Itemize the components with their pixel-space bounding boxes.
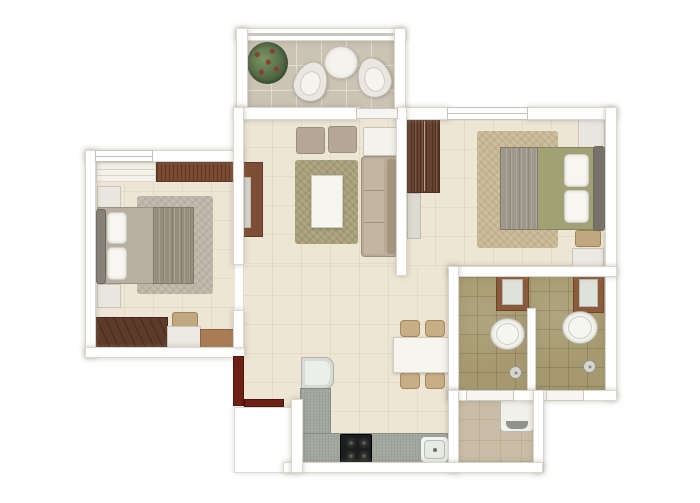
bedroom-1-blanket — [153, 207, 194, 284]
bedroom-1-dresser-white — [167, 326, 201, 349]
wall-bathroom-1-left — [448, 266, 459, 400]
wall-bedroom-1-right-lower — [233, 310, 244, 348]
bedroom-2-dresser-panel — [407, 193, 421, 239]
dining-chair-top-right — [425, 320, 445, 337]
bedroom-2-stool — [575, 230, 601, 247]
bathroom-2-washbasin — [573, 273, 604, 313]
bedroom-1-pillow-top — [107, 212, 127, 244]
wall-bedroom-2-bottom — [448, 266, 617, 277]
dining-chair-bottom-right — [425, 372, 445, 389]
floor-plan — [0, 0, 700, 503]
bedroom-2-pillow-bottom — [564, 190, 589, 223]
wall-right-exterior — [605, 107, 617, 400]
wall-bathrooms-divider — [527, 308, 536, 400]
dining-chair-top-left — [400, 320, 420, 337]
tv-screen — [244, 177, 251, 228]
balcony-door-sill — [356, 108, 398, 119]
bedroom-1-wardrobe — [95, 317, 168, 348]
wall-bedroom-1-right-upper — [233, 107, 244, 265]
bedroom-1-headboard — [96, 209, 106, 284]
bedroom-2-blanket — [500, 147, 538, 230]
washing-machine — [500, 398, 534, 432]
balcony-plant — [247, 42, 288, 84]
living-side-table — [363, 127, 398, 156]
wall-bedroom-1-bottom — [85, 347, 245, 358]
entry-door-leaf — [233, 356, 244, 406]
bathroom-1-door-sill — [466, 390, 514, 401]
kitchen-counter-vertical — [300, 388, 331, 435]
coffee-table — [311, 175, 343, 228]
bedroom-1-window-ledge — [96, 162, 156, 182]
fridge — [301, 357, 334, 389]
bedroom-2-wardrobe — [407, 119, 440, 193]
bathroom-2-door-sill — [546, 390, 584, 401]
ottoman-left — [296, 127, 325, 154]
bedroom-2-nightstand-top — [578, 117, 605, 148]
wall-utility-right — [533, 390, 544, 473]
wall-balcony-left — [236, 28, 248, 118]
bathroom-2-drain — [583, 360, 596, 373]
balcony-railing-line — [248, 33, 394, 36]
wall-bottom-exterior — [283, 462, 543, 473]
bathroom-1-washbasin — [496, 273, 529, 311]
ottoman-right — [328, 126, 357, 153]
wall-living-bedroom-2 — [396, 107, 407, 276]
bathroom-1-toilet — [490, 318, 525, 350]
sofa — [361, 156, 398, 257]
bedroom-1-pillow-bottom — [107, 247, 127, 280]
stove-hob — [340, 434, 372, 463]
bedroom-1-wood-cabinet — [156, 162, 243, 182]
wall-bedroom-1-left — [85, 150, 96, 358]
bedroom-1-window — [95, 150, 153, 162]
bedroom-1-nightstand-top — [97, 186, 121, 209]
dining-chair-bottom-left — [400, 372, 420, 389]
bathroom-1-drain — [509, 366, 522, 379]
balcony-round-table — [324, 46, 358, 79]
bedroom-2-pillow-top — [564, 154, 589, 187]
wall-bedroom-2-top-left — [404, 107, 450, 120]
bathroom-2-toilet — [562, 311, 598, 344]
kitchen-sink — [420, 436, 449, 463]
bedroom-2-headboard — [593, 146, 605, 231]
wall-utility-left — [448, 390, 459, 473]
wall-living-top — [236, 107, 360, 120]
wall-bedroom-2-top-right — [527, 107, 617, 120]
wall-kitchen-left — [291, 399, 303, 473]
entry-door-swing — [244, 399, 284, 407]
bedroom-2-window — [447, 107, 528, 120]
bedroom-1-nightstand-bottom — [97, 284, 121, 308]
dining-table — [393, 337, 452, 373]
